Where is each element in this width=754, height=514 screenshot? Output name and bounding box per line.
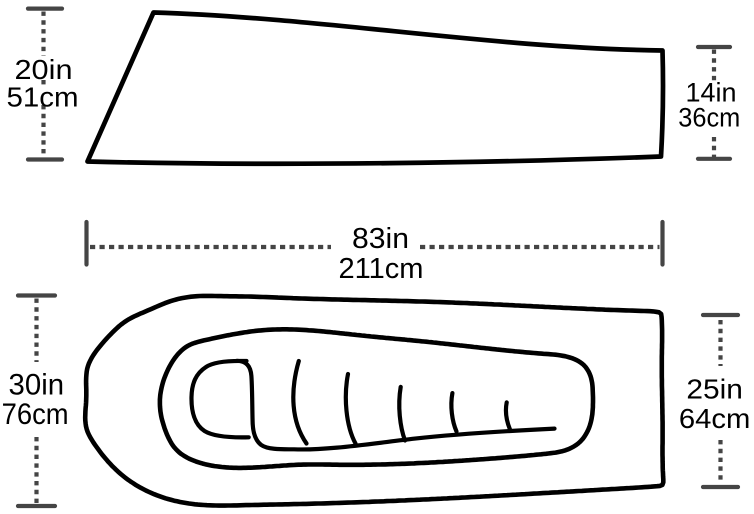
svg-text:36cm: 36cm [678,103,740,133]
svg-text:83in: 83in [352,223,409,255]
svg-text:25in: 25in [686,373,743,404]
svg-text:51cm: 51cm [7,82,79,113]
svg-text:76cm: 76cm [2,398,69,431]
svg-text:30in: 30in [9,369,65,402]
svg-text:64cm: 64cm [679,403,751,434]
svg-text:211cm: 211cm [339,253,424,285]
